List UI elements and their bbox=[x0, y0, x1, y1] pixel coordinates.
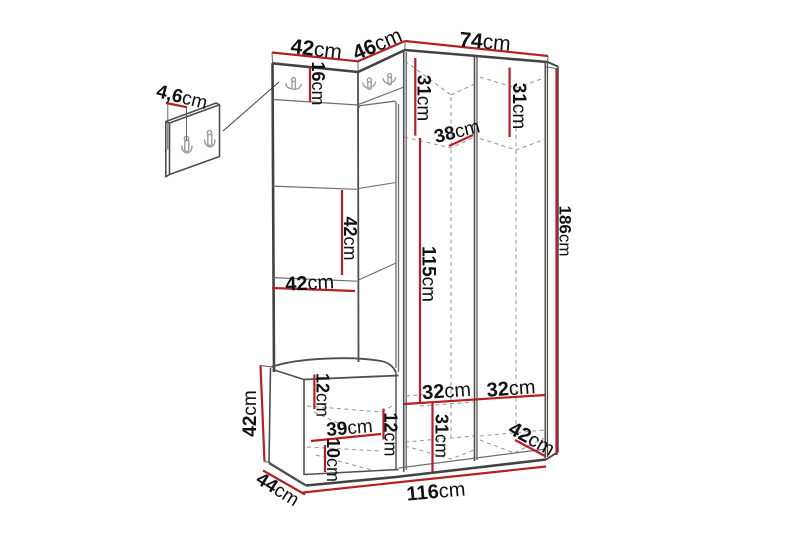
svg-text:186cm: 186cm bbox=[556, 205, 575, 256]
svg-text:42cm: 42cm bbox=[240, 390, 261, 436]
svg-text:32cm: 32cm bbox=[421, 379, 471, 404]
svg-text:42cm: 42cm bbox=[285, 271, 335, 296]
svg-text:115cm: 115cm bbox=[418, 246, 439, 302]
svg-text:12cm: 12cm bbox=[381, 412, 401, 456]
svg-text:42cm: 42cm bbox=[340, 216, 360, 260]
svg-text:16cm: 16cm bbox=[308, 61, 328, 105]
svg-text:74cm: 74cm bbox=[458, 28, 511, 55]
svg-text:31cm: 31cm bbox=[432, 414, 452, 458]
svg-text:31cm: 31cm bbox=[413, 75, 434, 121]
svg-text:31cm: 31cm bbox=[508, 83, 529, 129]
svg-text:32cm: 32cm bbox=[486, 376, 536, 401]
svg-text:10cm: 10cm bbox=[323, 438, 343, 482]
svg-text:12cm: 12cm bbox=[313, 373, 333, 417]
